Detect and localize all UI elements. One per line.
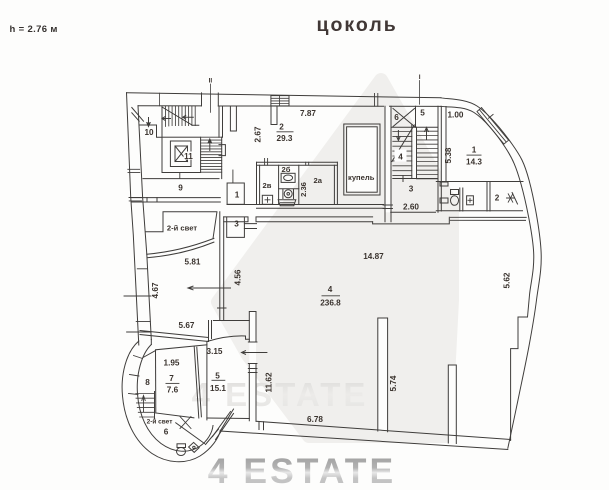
svg-text:5.38: 5.38: [444, 147, 453, 163]
svg-text:4 ESTATE: 4 ESTATE: [192, 376, 369, 413]
svg-text:2-й свет: 2-й свет: [147, 418, 173, 426]
svg-text:2-й свет: 2-й свет: [167, 224, 197, 233]
svg-text:14.87: 14.87: [363, 252, 384, 261]
svg-text:2.36: 2.36: [299, 182, 308, 197]
svg-text:2а: 2а: [314, 176, 323, 185]
svg-text:7.87: 7.87: [300, 109, 316, 118]
svg-text:купель: купель: [348, 173, 375, 182]
svg-text:10: 10: [144, 128, 154, 137]
svg-text:6.78: 6.78: [307, 415, 323, 424]
svg-text:6: 6: [394, 113, 399, 122]
svg-text:5: 5: [215, 372, 220, 381]
svg-text:4.67: 4.67: [151, 282, 160, 298]
svg-text:1.00: 1.00: [448, 111, 464, 120]
svg-text:5.74: 5.74: [389, 375, 398, 391]
svg-text:1: 1: [235, 191, 240, 200]
svg-text:4.56: 4.56: [234, 269, 243, 285]
svg-text:5.67: 5.67: [179, 321, 195, 330]
svg-text:11: 11: [184, 152, 193, 161]
svg-text:3.15: 3.15: [207, 347, 223, 356]
svg-text:1: 1: [472, 146, 477, 155]
svg-text:1.95: 1.95: [164, 359, 180, 368]
svg-text:14.3: 14.3: [466, 157, 482, 166]
svg-text:5.81: 5.81: [185, 258, 201, 267]
svg-text:3: 3: [409, 185, 414, 194]
svg-text:2в: 2в: [263, 181, 272, 190]
svg-text:7: 7: [169, 374, 174, 383]
svg-text:236.8: 236.8: [320, 299, 341, 308]
svg-text:цоколь: цоколь: [317, 14, 398, 36]
svg-text:2: 2: [279, 123, 284, 132]
svg-text:2.60: 2.60: [403, 203, 419, 212]
svg-text:15.1: 15.1: [210, 384, 226, 393]
svg-text:11.62: 11.62: [265, 372, 274, 392]
svg-text:h = 2.76 м: h = 2.76 м: [10, 24, 58, 35]
svg-text:II: II: [209, 78, 213, 85]
svg-text:6: 6: [164, 428, 169, 437]
svg-text:2: 2: [495, 194, 500, 203]
svg-text:8: 8: [145, 378, 150, 387]
svg-text:5: 5: [420, 109, 425, 118]
svg-text:4: 4: [398, 153, 403, 162]
svg-text:7.6: 7.6: [167, 386, 179, 395]
svg-text:2б: 2б: [282, 165, 291, 174]
svg-text:29.3: 29.3: [277, 134, 293, 143]
svg-text:4 ESTATE: 4 ESTATE: [208, 451, 396, 490]
svg-text:5.62: 5.62: [503, 272, 512, 288]
svg-text:4: 4: [328, 285, 333, 294]
svg-text:2.67: 2.67: [254, 126, 263, 142]
svg-text:9: 9: [178, 184, 183, 193]
svg-text:3: 3: [234, 220, 239, 229]
svg-text:I: I: [419, 74, 421, 81]
